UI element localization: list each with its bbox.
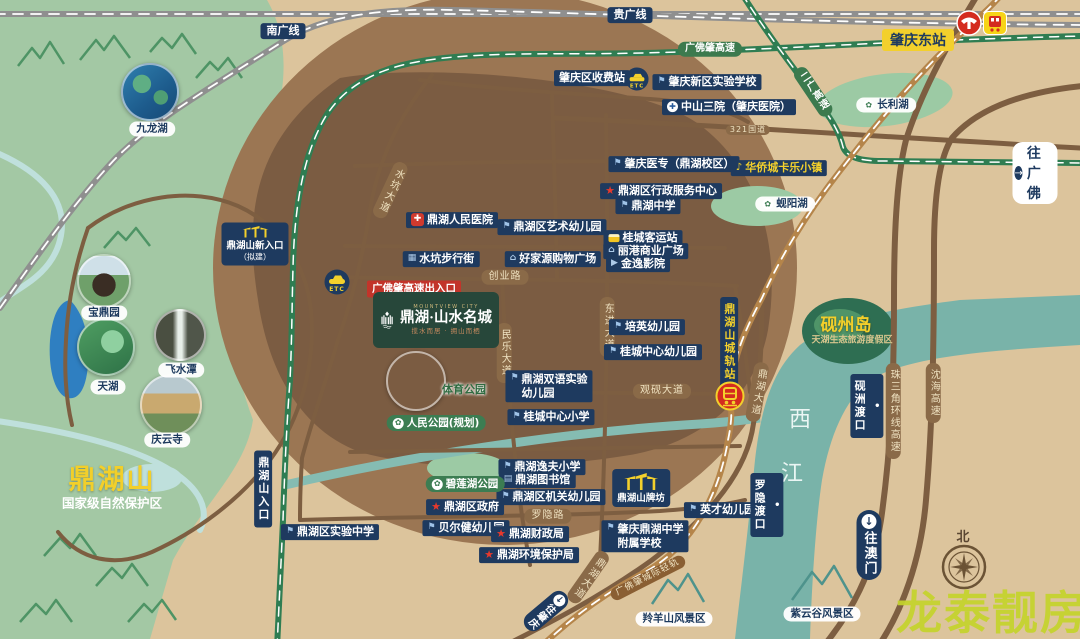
arrow-right-icon: → [1015, 166, 1023, 180]
yanzhou-ferry: •砚洲渡口 [850, 374, 883, 438]
luoyin-ferry: •罗隐渡口 [750, 473, 783, 537]
dhs-entrance-text: 鼎湖山入口 [256, 457, 270, 522]
ziyungu: 紫云谷风景区 [784, 606, 861, 621]
shop-icon: ⌂ [608, 245, 614, 256]
star-icon: ★ [484, 548, 494, 562]
school-icon: ⚑ [613, 158, 621, 169]
env-bureau-text: 鼎湖环境保护局 [497, 548, 574, 562]
yanzhou-ferry-text: 砚洲渡口 [852, 380, 866, 432]
zhaoqing-east-station-label: 肇庆东站 [882, 29, 954, 51]
peiying-kg-text: 培英幼儿园 [625, 320, 680, 334]
renmin-hospital: ✚鼎湖人民医院 [406, 212, 498, 228]
star-icon: ★ [431, 500, 441, 514]
map-canvas: MOUNTVIEW CITY 鼎湖·山水名城 揽水而居 · 拥山而栖 鼎湖山新入… [0, 0, 1080, 639]
feishuitan-label: 飞水潭 [158, 362, 204, 377]
dinghushan-subtitle: 国家级自然保护区 [62, 493, 162, 512]
dinghu-middle: ⚑鼎湖中学 [615, 198, 680, 214]
yanzhou-island-text: 砚州岛 [821, 315, 872, 336]
to-guangfo-sign: → 往广佛 [1013, 142, 1058, 204]
jiulonghu-label: 九龙湖 [129, 121, 175, 136]
river-jiang-text: 江 [781, 459, 803, 487]
river-xi: 西 [789, 405, 811, 433]
zsj-hwy-text: 珠三角环线高速 [887, 369, 900, 453]
library: ▤鼎湖图书馆 [499, 472, 576, 488]
toll-station: 肇庆区收费站 [554, 70, 630, 86]
sports-park-photo [386, 351, 446, 411]
leaf-icon: ✿ [762, 199, 773, 210]
tianhu-resort-text: 天湖生态旅游度假区 [811, 335, 892, 346]
gc-primary: ⚑桂城中心小学 [507, 409, 594, 425]
new-entrance-subtext: （拟建） [239, 252, 271, 263]
to-macau-text: 往澳门 [860, 531, 879, 576]
dhs-entrance: 鼎湖山入口 [254, 451, 272, 528]
shenhai-hwy: 沈海高速 [926, 363, 941, 423]
shiyan-middle: ⚑鼎湖区实验中学 [281, 524, 379, 540]
jiulonghu-photo [121, 63, 179, 121]
art-kindergarten: ⚑鼎湖区艺术幼儿园 [497, 219, 606, 235]
school-icon: ⚑ [620, 200, 628, 211]
admin-center-text: 鼎湖区行政服务中心 [618, 184, 717, 198]
to-guangfo-text: 往广佛 [1027, 143, 1051, 203]
shuikeng-street: ▦水坑步行街 [403, 251, 480, 267]
tianhu-resort: 天湖生态旅游度假区 [811, 335, 892, 346]
shuangyu-kg: ⚑鼎湖双语实验 幼儿园 [505, 370, 592, 402]
shenhai-hwy-text: 沈海高速 [927, 369, 940, 417]
school-icon: ⚑ [512, 411, 520, 422]
guanyan-ave-text: 观砚大道 [640, 385, 684, 398]
yingcai-kg-text: 英才幼儿园 [700, 503, 755, 517]
logo-mark-icon [380, 301, 394, 339]
leaf-icon: ✿ [863, 100, 874, 111]
toll-station-text: 肇庆区收费站 [559, 71, 625, 85]
xinqu-school-text: 肇庆新区实验学校 [669, 75, 757, 89]
dinghushan-title: 鼎湖山 [69, 458, 156, 497]
tram-badge-icon [983, 11, 1007, 35]
project-logo: MOUNTVIEW CITY 鼎湖·山水名城 揽水而居 · 拥山而栖 [373, 292, 499, 348]
film-icon: ▶ [611, 258, 618, 269]
oct-town: ♪华侨城卡乐小镇 [731, 160, 827, 176]
qingyunsi-label: 庆云寺 [144, 432, 190, 447]
dinghushan-paifang-label: 鼎湖山牌坊 [612, 469, 670, 507]
rail-nanguang-text: 南广线 [267, 24, 300, 38]
admin-center: ★鼎湖区行政服务中心 [600, 183, 722, 199]
road-g321-text: 321国道 [730, 125, 766, 135]
feishuitan-photo [154, 309, 206, 361]
luoyin-road-text: 罗隐路 [532, 510, 565, 523]
guicheng-kg: ⚑桂城中心幼儿园 [604, 344, 702, 360]
redcross-icon: ✚ [411, 214, 424, 227]
rail-nanguang: 南广线 [261, 23, 306, 39]
haojiayuan: ⌂好家源购物广场 [505, 251, 601, 267]
baodingyuan-label: 宝鼎园 [81, 305, 127, 320]
baodingyuan-photo [77, 254, 131, 308]
jinyi-cinema-text: 金逸影院 [621, 257, 665, 271]
dot-icon: • [769, 501, 782, 509]
jiguan-kg-text: 鼎湖区机关幼儿园 [513, 490, 601, 504]
fushu-school-text: 肇庆鼎湖中学 附属学校 [618, 522, 684, 550]
changlihu-text: 长利湖 [877, 98, 909, 111]
leaf-icon: ✿ [393, 418, 404, 429]
school-icon: ⚑ [503, 461, 511, 472]
school-icon: ⚑ [606, 522, 614, 533]
ziyungu-text: 紫云谷风景区 [791, 607, 854, 620]
school-icon: ⚑ [614, 321, 622, 332]
shuikeng-street-text: 水坑步行街 [419, 252, 474, 266]
renmin-hospital-text: 鼎湖人民医院 [427, 213, 493, 227]
renmin-park-text: 人民公园(规划) [407, 416, 480, 429]
jinyi-cinema: ▶金逸影院 [606, 256, 670, 272]
xinqu-school: ⚑肇庆新区实验学校 [652, 74, 761, 90]
school-icon: ⚑ [502, 221, 510, 232]
art-kindergarten-text: 鼎湖区艺术幼儿园 [514, 220, 602, 234]
road-g321: 321国道 [726, 125, 770, 135]
peiying-kg: ⚑培英幼儿园 [609, 319, 685, 335]
music-icon: ♪ [736, 162, 742, 175]
school-icon: ⚑ [427, 522, 435, 533]
rail-station-label-text: 鼎湖山城轨站 [722, 303, 736, 381]
district-gov: ★鼎湖区政府 [426, 499, 504, 515]
jiguan-kg: ⚑鼎湖区机关幼儿园 [496, 489, 605, 505]
school-icon: ⚑ [689, 504, 697, 515]
leaf-icon: ✿ [432, 479, 443, 490]
finance-bureau: ★鼎湖财政局 [491, 526, 569, 542]
zhongshan-hospital: ✚中山三院（肇庆医院） [662, 99, 796, 115]
tianhu-photo [77, 318, 135, 376]
fushu-school: ⚑肇庆鼎湖中学 附属学校 [601, 520, 688, 552]
book-icon: ▤ [504, 474, 513, 485]
school-icon: ⚑ [510, 372, 518, 383]
school-icon: ⚑ [657, 76, 665, 87]
new-entrance-text: 鼎湖山新入口 [226, 238, 283, 252]
zhongshan-hospital-text: 中山三院（肇庆医院） [681, 100, 791, 114]
yizhuan: ⚑肇庆医专（鼎湖校区） [608, 156, 739, 172]
tianhu-label: 天湖 [91, 379, 126, 394]
yanzhou-island: 砚州岛 [821, 315, 872, 336]
dinghushan-new-entrance-label: 鼎湖山新入口 （拟建） [221, 223, 288, 266]
guanyan-ave: 观砚大道 [633, 384, 691, 399]
yingcai-kg: ⚑英才幼儿园 [684, 502, 760, 518]
school-icon: ⚑ [286, 526, 294, 537]
haojiayuan-text: 好家源购物广场 [519, 252, 596, 266]
archway-icon [242, 226, 268, 238]
chuangye-road-text: 创业路 [489, 271, 522, 284]
star-icon: ★ [496, 527, 506, 541]
paifang-icon [624, 472, 658, 490]
arrow-down-icon: ↓ [862, 514, 877, 529]
school-icon: ⚑ [609, 346, 617, 357]
bilianhu-park-text: 碧莲湖公园 [446, 477, 499, 490]
etc-toll-icon: ETC [324, 269, 350, 295]
lingyangshan-text: 羚羊山风景区 [643, 612, 706, 625]
bus-icon [609, 234, 620, 242]
shuangyu-kg-text: 鼎湖双语实验 幼儿园 [522, 372, 588, 400]
shop-icon: ⌂ [510, 253, 516, 264]
luoyin-ferry-text: 罗隐渡口 [752, 479, 766, 531]
lingyangshan: 羚羊山风景区 [636, 611, 713, 626]
sports-park-label: 体育公园 [442, 383, 486, 397]
river-jiang: 江 [781, 459, 803, 487]
dinghu-middle-text: 鼎湖中学 [632, 199, 676, 213]
dot-icon: • [869, 402, 882, 410]
shiyan-middle-text: 鼎湖区实验中学 [297, 525, 374, 539]
walk-icon: ▦ [408, 253, 417, 264]
logo-slogan: 揽水而居 · 拥山而栖 [411, 328, 480, 336]
svg-text:ETC: ETC [329, 286, 345, 293]
hwy-gfz-text: 广佛肇高速 [685, 43, 735, 56]
toll-gate-icon: ETC [625, 67, 649, 91]
zsj-hwy: 珠三角环线高速 [886, 363, 901, 459]
star-icon: ★ [605, 184, 615, 198]
chuangye-road: 创业路 [482, 270, 529, 285]
qingyunsi-photo [140, 374, 202, 436]
district-gov-text: 鼎湖区政府 [444, 500, 499, 514]
rail-guiguang: 贵广线 [608, 7, 653, 23]
river-xi-text: 西 [789, 405, 811, 433]
lightrail-station-icon [715, 381, 745, 411]
guicheng-kg-text: 桂城中心幼儿园 [620, 345, 697, 359]
to-macau-sign: ↓ 往澳门 [857, 510, 882, 580]
finance-bureau-text: 鼎湖财政局 [509, 527, 564, 541]
rail-station-label: 鼎湖山城轨站 [720, 297, 738, 387]
luoyin-road: 罗隐路 [525, 509, 572, 524]
rail-guiguang-text: 贵广线 [614, 8, 647, 22]
library-text: 鼎湖图书馆 [515, 473, 570, 487]
logo-brand-name: 鼎湖·山水名城 [400, 310, 492, 327]
bilianhu-park: ✿碧莲湖公园 [426, 476, 505, 492]
paifang-text: 鼎湖山牌坊 [617, 490, 665, 504]
renmin-park: ✿人民公园(规划) [387, 415, 486, 431]
xianyanghu: ✿蚬阳湖 [755, 196, 815, 211]
hwy-gfz: 广佛肇高速 [678, 42, 742, 57]
china-railway-icon [956, 10, 982, 36]
yizhuan-text: 肇庆医专（鼎湖校区） [625, 157, 735, 171]
hospital-icon: ✚ [667, 102, 678, 113]
oct-town-text: 华侨城卡乐小镇 [745, 161, 822, 175]
svg-text:ETC: ETC [630, 83, 644, 89]
watermark: 龙泰靓房 [896, 577, 1080, 639]
xianyanghu-text: 蚬阳湖 [776, 197, 808, 210]
changlihu: ✿长利湖 [856, 97, 916, 112]
gc-primary-text: 桂城中心小学 [524, 410, 590, 424]
env-bureau: ★鼎湖环境保护局 [479, 547, 579, 563]
